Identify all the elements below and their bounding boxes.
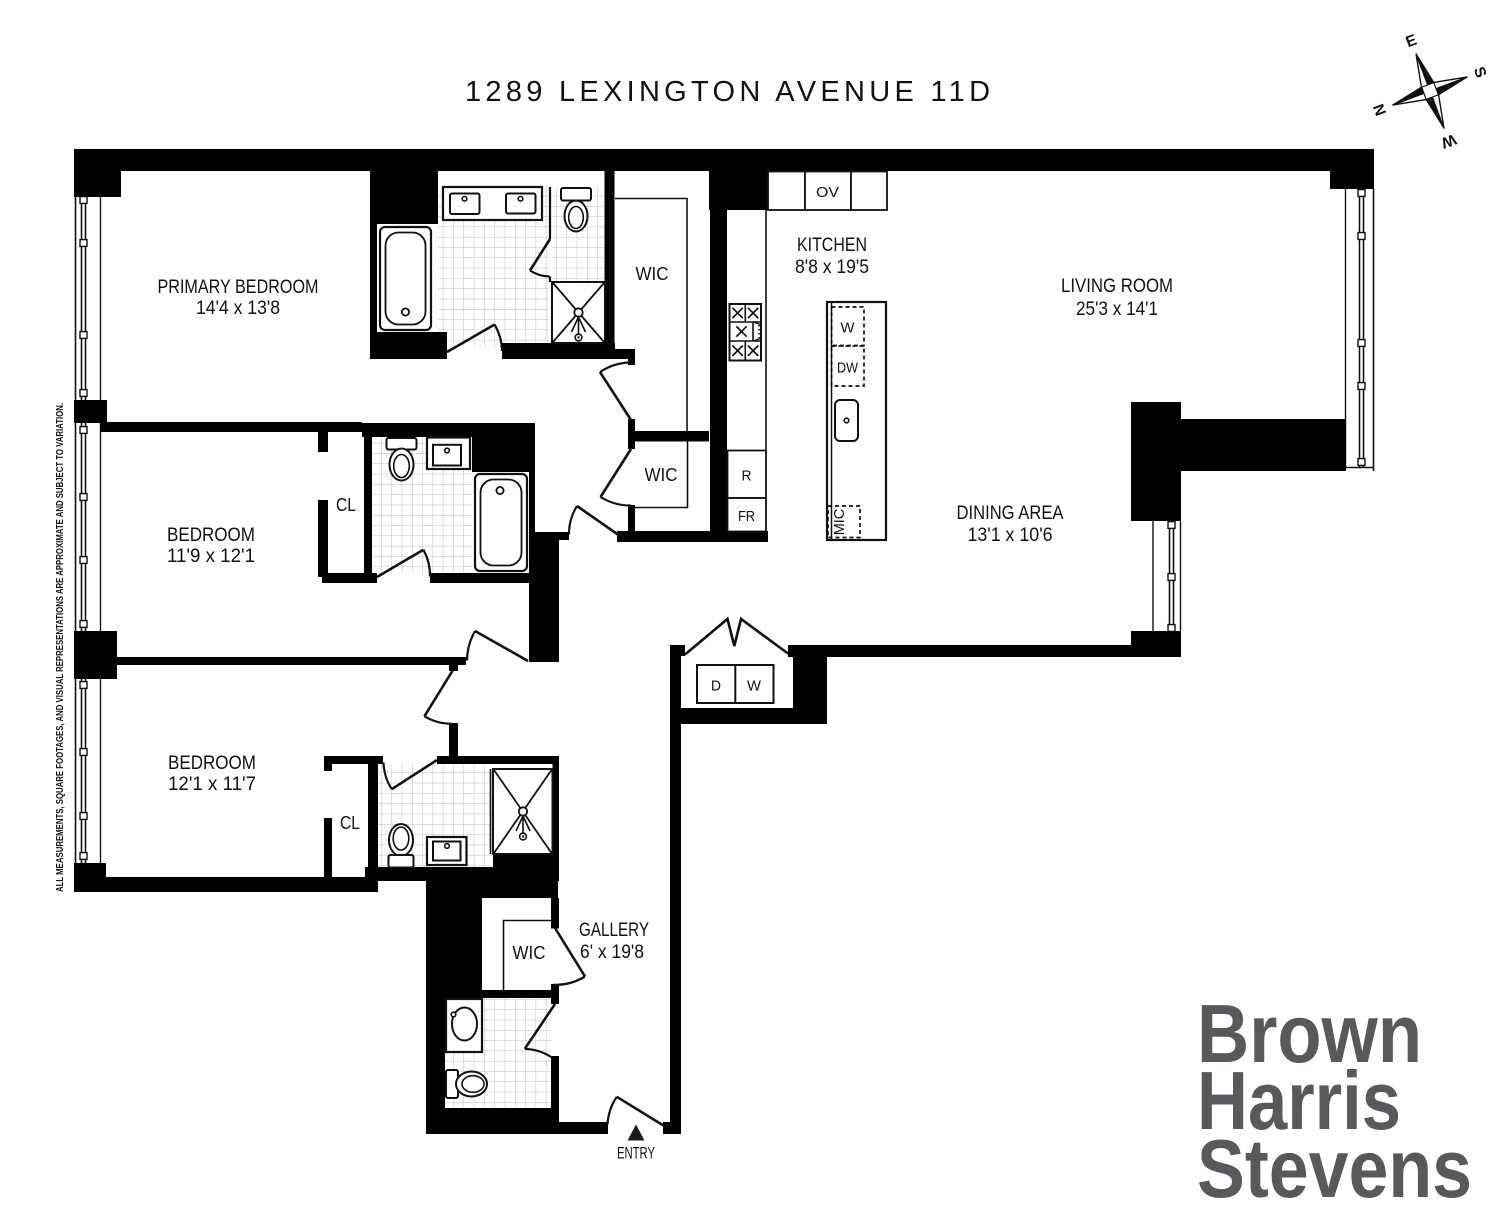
svg-text:25'3 x 14'1: 25'3 x 14'1 <box>1076 299 1158 320</box>
svg-text:Stevens: Stevens <box>1197 1122 1472 1215</box>
svg-text:8'8 x 19'5: 8'8 x 19'5 <box>795 257 869 278</box>
svg-text:BEDROOM: BEDROOM <box>167 525 255 546</box>
svg-text:WIC: WIC <box>513 942 546 963</box>
svg-text:14'4 x 13'8: 14'4 x 13'8 <box>196 298 280 319</box>
svg-text:DW: DW <box>837 361 858 377</box>
svg-text:MIC: MIC <box>832 509 848 536</box>
svg-text:DINING AREA: DINING AREA <box>957 503 1064 524</box>
svg-text:1289 LEXINGTON AVENUE 11D: 1289 LEXINGTON AVENUE 11D <box>465 76 994 108</box>
svg-text:ALL MEASUREMENTS, SQUARE FOOTA: ALL MEASUREMENTS, SQUARE FOOTAGES, AND V… <box>55 403 66 892</box>
svg-text:R: R <box>742 469 752 485</box>
svg-text:LIVING ROOM: LIVING ROOM <box>1061 276 1173 297</box>
svg-text:WIC: WIC <box>636 263 669 284</box>
svg-text:W: W <box>747 679 761 695</box>
svg-text:6' x 19'8: 6' x 19'8 <box>580 942 644 963</box>
svg-text:ENTRY: ENTRY <box>617 1145 655 1163</box>
svg-text:OV: OV <box>816 185 839 201</box>
svg-text:W: W <box>841 321 855 337</box>
svg-text:13'1 x 10'6: 13'1 x 10'6 <box>968 525 1053 546</box>
svg-text:11'9 x 12'1: 11'9 x 12'1 <box>167 546 255 567</box>
svg-text:D: D <box>711 679 721 695</box>
svg-text:CL: CL <box>340 812 360 833</box>
svg-text:FR: FR <box>738 509 755 525</box>
svg-text:BEDROOM: BEDROOM <box>168 753 256 774</box>
svg-text:GALLERY: GALLERY <box>579 920 649 941</box>
svg-text:KITCHEN: KITCHEN <box>797 235 867 256</box>
svg-text:PRIMARY BEDROOM: PRIMARY BEDROOM <box>158 277 319 298</box>
svg-text:WIC: WIC <box>645 464 678 485</box>
svg-text:CL: CL <box>336 494 356 515</box>
svg-text:12'1 x 11'7: 12'1 x 11'7 <box>168 774 256 795</box>
